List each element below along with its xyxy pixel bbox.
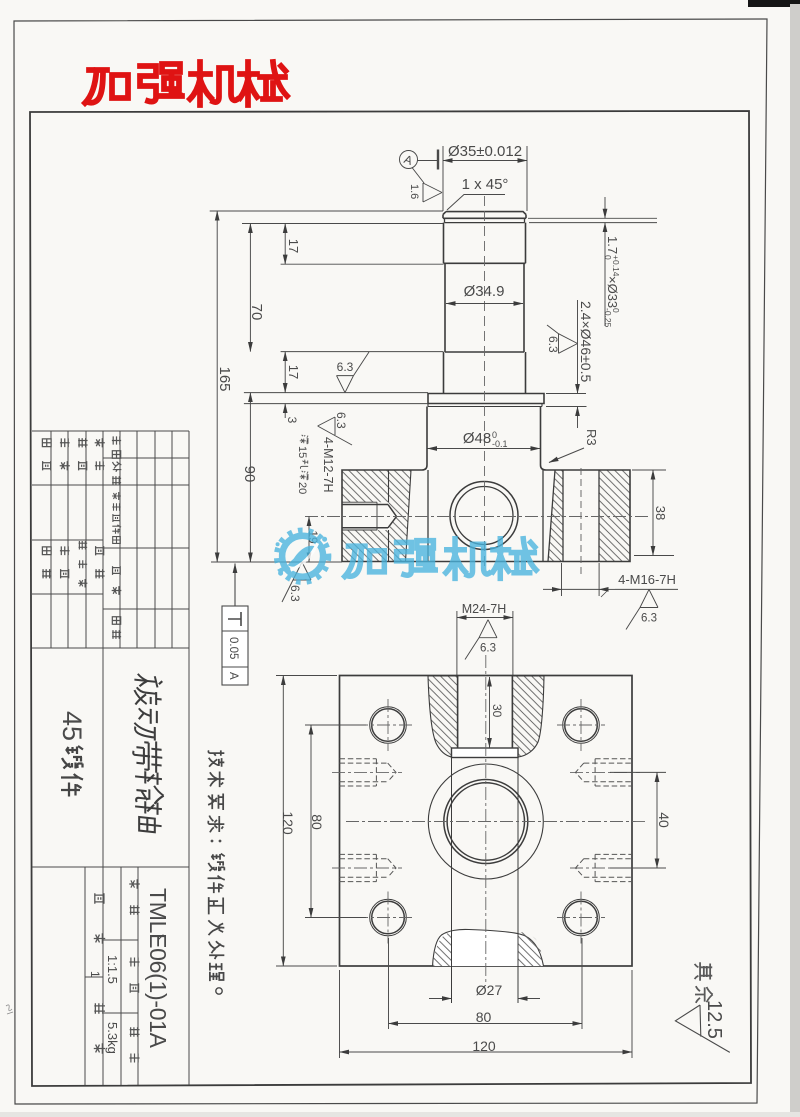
svg-text:0.05: 0.05 (227, 637, 239, 659)
svg-text:6.3: 6.3 (288, 585, 302, 602)
svg-text:120: 120 (280, 811, 296, 835)
svg-text:M24-7H: M24-7H (462, 602, 506, 616)
svg-text:45: 45 (57, 711, 87, 741)
svg-text:Ø35±0.012: Ø35±0.012 (448, 143, 522, 160)
svg-text:6.3: 6.3 (337, 360, 354, 374)
svg-text:30: 30 (490, 704, 504, 718)
svg-text:4-M12-7H: 4-M12-7H (321, 437, 335, 493)
svg-text:70: 70 (248, 304, 265, 321)
svg-text:A: A (227, 672, 239, 680)
svg-text:0: 0 (603, 255, 613, 260)
svg-text:-0.1: -0.1 (492, 439, 508, 449)
svg-text:TMLE06(1)-01A: TMLE06(1)-01A (145, 888, 171, 1049)
svg-text:40: 40 (656, 812, 672, 828)
svg-text:-0.25: -0.25 (603, 308, 613, 328)
svg-text:17: 17 (286, 365, 301, 379)
svg-text:Ø27: Ø27 (476, 982, 503, 998)
svg-text:3: 3 (285, 417, 299, 424)
svg-text:165: 165 (216, 366, 233, 391)
svg-text:×Ø33: ×Ø33 (605, 276, 620, 308)
svg-text:4-M16-7H: 4-M16-7H (618, 572, 676, 587)
svg-text:80: 80 (309, 814, 325, 830)
svg-text:Ø48: Ø48 (463, 430, 491, 447)
svg-text:38: 38 (653, 506, 668, 520)
svg-text:120: 120 (472, 1038, 496, 1054)
svg-text:1: 1 (88, 971, 102, 978)
svg-text:1 x 45°: 1 x 45° (462, 176, 509, 193)
svg-text:17: 17 (286, 239, 301, 253)
svg-text:1.7: 1.7 (605, 236, 620, 254)
svg-text:2.4×Ø46±0.5: 2.4×Ø46±0.5 (578, 301, 594, 382)
svg-text:6.3: 6.3 (641, 613, 657, 625)
svg-text:6.3: 6.3 (480, 643, 496, 655)
svg-text:20: 20 (296, 482, 308, 494)
svg-text:6.3: 6.3 (334, 412, 348, 429)
svg-text:6.3: 6.3 (546, 336, 560, 353)
svg-text:80: 80 (476, 1009, 492, 1025)
svg-text:Ø34.9: Ø34.9 (464, 283, 505, 300)
svg-text:R3: R3 (584, 429, 599, 446)
svg-text:90: 90 (241, 466, 258, 483)
svg-text:5.3kg: 5.3kg (105, 1022, 120, 1054)
svg-text:1.6: 1.6 (408, 184, 420, 199)
svg-text:1:1.5: 1:1.5 (105, 955, 120, 984)
svg-text:15: 15 (296, 446, 308, 458)
svg-text:12.5: 12.5 (703, 1000, 725, 1039)
